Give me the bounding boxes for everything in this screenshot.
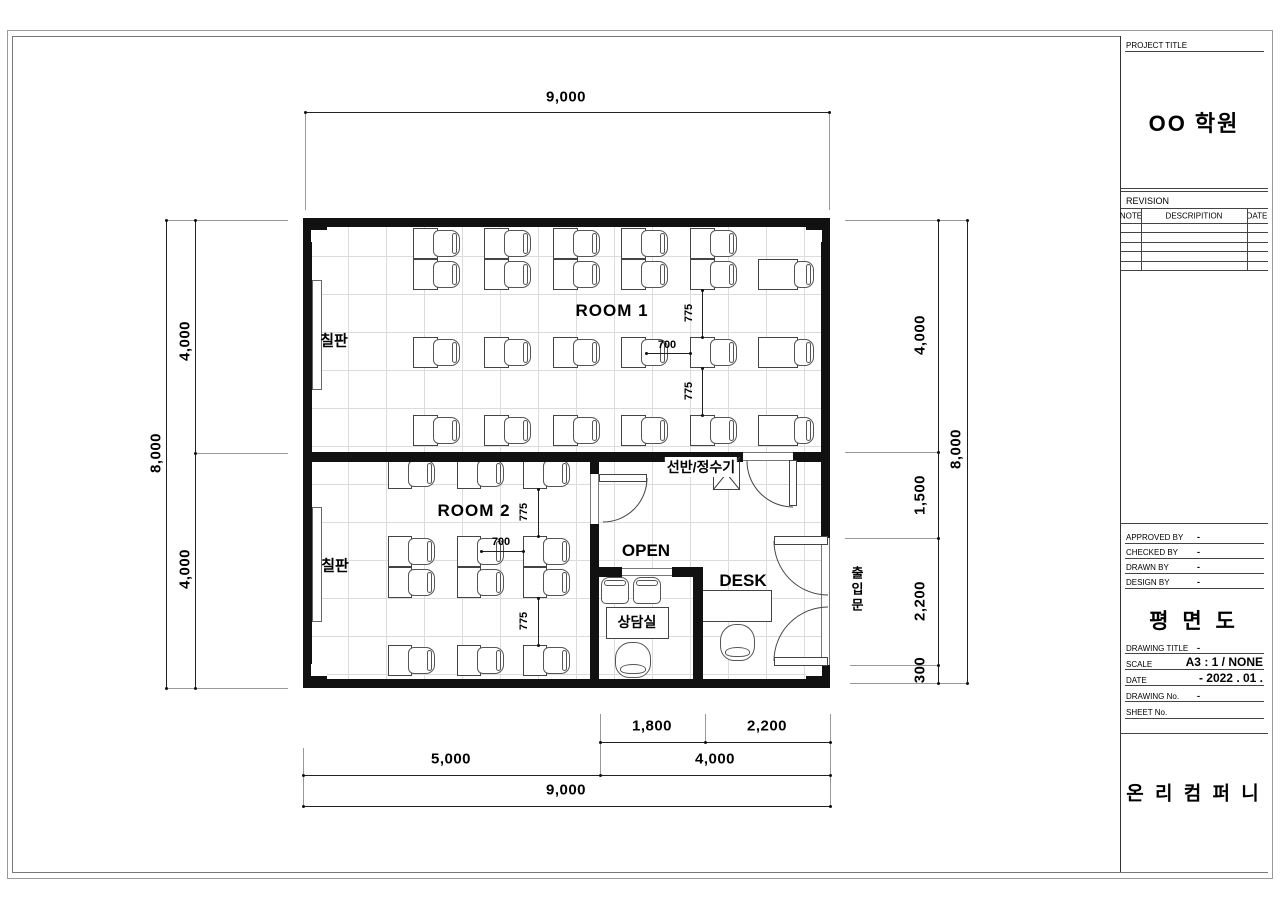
drawn-by-value: -	[1197, 562, 1200, 572]
dimension-tick	[304, 111, 307, 114]
scale-value: A3 : 1 / NONE	[1186, 655, 1263, 669]
dim-room2-775-lower: 775	[518, 612, 530, 630]
dimension-line	[600, 742, 830, 743]
extension-line	[845, 538, 938, 539]
dimension-tick	[966, 682, 969, 685]
revision-label: REVISION	[1126, 196, 1169, 206]
dimension-tick	[937, 451, 940, 454]
dim-room1-700: 700	[658, 339, 676, 351]
divider	[1121, 188, 1268, 189]
dimension-line	[303, 806, 830, 807]
desk	[758, 259, 798, 290]
drawing-title-label: DRAWING TITLE	[1126, 644, 1188, 653]
door-leaf	[599, 474, 647, 482]
dimension-line	[303, 775, 830, 776]
chair	[794, 417, 814, 444]
dimension-tick	[537, 644, 540, 647]
desk	[758, 415, 798, 446]
chair	[794, 261, 814, 288]
dimension-line	[702, 368, 703, 415]
chair	[433, 339, 460, 366]
desk	[758, 337, 798, 368]
chair	[408, 460, 435, 487]
divider	[1121, 251, 1268, 252]
divider	[1125, 573, 1264, 574]
drawing-sheet: ROOM 1 ROOM 2 칠판 칠판 선반/정수기 OPEN DESK 상담실…	[0, 0, 1280, 905]
dimension-tick	[829, 774, 832, 777]
reception-desk	[697, 590, 772, 622]
date-label: DATE	[1126, 676, 1147, 685]
dimension-tick	[829, 805, 832, 808]
revision-col-note: NOTE	[1120, 212, 1142, 221]
dim-room2-700: 700	[492, 536, 510, 548]
dimension-tick	[966, 219, 969, 222]
dim-top-9000: 9,000	[546, 89, 586, 106]
dimension-tick	[522, 550, 525, 553]
approved-by-value: -	[1197, 532, 1200, 542]
guest-chair	[633, 577, 661, 604]
open-area-label: OPEN	[622, 541, 670, 561]
drawing-name: 평 면 도	[1149, 605, 1239, 635]
divider	[1125, 51, 1264, 52]
chair	[504, 339, 531, 366]
divider	[1121, 208, 1268, 209]
door-leaf	[789, 460, 797, 506]
chair	[433, 417, 460, 444]
wall	[693, 567, 703, 688]
extension-line	[600, 714, 601, 775]
dimension-tick	[829, 741, 832, 744]
extension-line	[830, 714, 831, 806]
drawn-by-label: DRAWN BY	[1126, 563, 1169, 572]
entrance-door-label: 출입문	[847, 566, 866, 614]
dim-left-8000: 8,000	[148, 433, 165, 473]
chair	[641, 261, 668, 288]
company-name: 온 리 컴 퍼 니	[1126, 779, 1262, 806]
checked-by-label: CHECKED BY	[1126, 548, 1178, 557]
chair	[477, 647, 504, 674]
dim-bottom-2200: 2,200	[747, 718, 787, 735]
drawing-title-value: -	[1197, 643, 1200, 653]
dim-room1-775-lower: 775	[683, 382, 695, 400]
dim-right-2200: 2,200	[912, 581, 929, 621]
dimension-tick	[302, 805, 305, 808]
extension-line	[829, 112, 830, 210]
dimension-line	[305, 112, 829, 113]
wall	[793, 452, 830, 462]
chair	[408, 647, 435, 674]
corner-column-notch	[806, 230, 822, 242]
corner-column-notch	[311, 664, 327, 676]
dim-left-4000-top: 4,000	[177, 321, 194, 361]
drawing-no-label: DRAWING No.	[1126, 692, 1179, 701]
office-chair	[720, 624, 755, 661]
drawing-no-value: -	[1197, 691, 1200, 701]
chair	[710, 261, 737, 288]
divider	[1125, 701, 1264, 702]
dim-right-4000: 4,000	[912, 315, 929, 355]
divider	[1125, 543, 1264, 544]
design-by-value: -	[1197, 577, 1200, 587]
divider	[1141, 208, 1142, 270]
chair	[794, 339, 814, 366]
extension-line	[195, 453, 288, 454]
dimension-tick	[937, 682, 940, 685]
project-name: OO 학원	[1149, 106, 1240, 138]
dimension-tick	[480, 550, 483, 553]
title-block: PROJECT TITLE OO 학원 REVISION NOTE DESCRI…	[1120, 36, 1268, 872]
guest-chair	[601, 577, 629, 604]
chair	[408, 569, 435, 596]
extension-line	[166, 688, 288, 689]
chair	[504, 261, 531, 288]
chair	[543, 569, 570, 596]
sheet-no-label: SHEET No.	[1126, 708, 1167, 717]
door-leaf	[774, 536, 828, 545]
dimension-tick	[537, 535, 540, 538]
chair	[504, 230, 531, 257]
dimension-tick	[937, 537, 940, 540]
chair	[573, 417, 600, 444]
revision-col-date: DATE	[1247, 212, 1268, 221]
chair	[543, 647, 570, 674]
divider	[1121, 242, 1268, 243]
extension-line	[303, 748, 304, 806]
dimension-tick	[599, 774, 602, 777]
divider	[1121, 270, 1268, 271]
dim-bottom-5000: 5,000	[431, 751, 471, 768]
design-by-label: DESIGN BY	[1126, 578, 1170, 587]
dim-right-8000: 8,000	[948, 429, 965, 469]
wall	[599, 567, 622, 577]
dimension-tick	[537, 488, 540, 491]
extension-line	[166, 220, 288, 221]
dimension-line	[538, 489, 539, 536]
chair	[543, 538, 570, 565]
revision-col-description: DESCRIPITION	[1166, 212, 1223, 221]
dimension-tick	[701, 367, 704, 370]
extension-line	[845, 220, 967, 221]
divider	[1121, 223, 1268, 224]
extension-line	[305, 112, 306, 210]
chair	[573, 230, 600, 257]
chair	[543, 460, 570, 487]
dimension-tick	[704, 741, 707, 744]
wall	[590, 452, 599, 474]
chair	[433, 230, 460, 257]
dimension-tick	[937, 219, 940, 222]
extension-line	[705, 714, 706, 742]
divider	[1121, 261, 1268, 262]
dim-room1-775-upper: 775	[683, 304, 695, 322]
dimension-tick	[689, 352, 692, 355]
dimension-tick	[302, 774, 305, 777]
dimension-line	[166, 220, 167, 688]
desk-label: DESK	[719, 571, 766, 591]
dim-left-4000-bottom: 4,000	[177, 549, 194, 589]
dim-bottom-1800: 1,800	[632, 718, 672, 735]
chair	[477, 460, 504, 487]
chair	[641, 417, 668, 444]
dimension-tick	[828, 111, 831, 114]
checked-by-value: -	[1197, 547, 1200, 557]
divider	[1247, 208, 1248, 270]
door-leaf	[774, 657, 828, 666]
room1-label: ROOM 1	[575, 301, 648, 321]
blackboard-room1-label: 칠판	[320, 330, 348, 351]
office-chair	[615, 642, 651, 678]
scale-label: SCALE	[1126, 660, 1152, 669]
dimension-tick	[537, 597, 540, 600]
chair	[710, 417, 737, 444]
counseling-room-label: 상담실	[618, 612, 657, 632]
dimension-tick	[165, 687, 168, 690]
dim-bottom-4000: 4,000	[695, 751, 735, 768]
chair	[573, 261, 600, 288]
dimension-line	[646, 353, 690, 354]
dimension-line	[967, 220, 968, 683]
dimension-tick	[701, 414, 704, 417]
divider	[1121, 191, 1268, 192]
sliding-door-opening	[622, 568, 672, 576]
divider	[1125, 685, 1264, 686]
chair	[433, 261, 460, 288]
dim-right-300: 300	[912, 657, 929, 684]
dimension-tick	[194, 219, 197, 222]
divider	[1125, 669, 1264, 670]
dim-bottom-9000: 9,000	[546, 782, 586, 799]
date-value: - 2022 . 01 .	[1199, 671, 1263, 685]
chair	[573, 339, 600, 366]
divider	[1125, 588, 1264, 589]
door-opening	[590, 474, 599, 524]
dim-right-1500: 1,500	[912, 475, 929, 515]
door-opening	[821, 538, 830, 665]
dimension-line	[538, 598, 539, 645]
blackboard-room2-label: 칠판	[321, 555, 349, 576]
divider	[1121, 523, 1268, 524]
dimension-tick	[701, 336, 704, 339]
approved-by-label: APPROVED BY	[1126, 533, 1183, 542]
chair	[710, 339, 737, 366]
dimension-line	[702, 290, 703, 337]
divider	[1125, 558, 1264, 559]
divider	[1121, 733, 1268, 734]
chair	[477, 569, 504, 596]
room2-label: ROOM 2	[437, 501, 510, 521]
dimension-tick	[165, 219, 168, 222]
dimension-line	[481, 551, 523, 552]
dimension-tick	[194, 452, 197, 455]
dim-room2-775-upper: 775	[518, 503, 530, 521]
divider	[1125, 653, 1264, 654]
wall	[303, 218, 830, 227]
chair	[408, 538, 435, 565]
wall	[303, 679, 830, 688]
dimension-tick	[937, 664, 940, 667]
dimension-tick	[194, 687, 197, 690]
chair	[504, 417, 531, 444]
shelf-water-purifier-label: 선반/정수기	[665, 457, 737, 477]
chair	[641, 230, 668, 257]
door-opening	[743, 452, 793, 461]
wall	[821, 218, 830, 538]
corner-column-notch	[311, 230, 327, 242]
divider	[1121, 232, 1268, 233]
extension-line	[850, 683, 967, 684]
project-title-label: PROJECT TITLE	[1126, 41, 1187, 50]
wall	[590, 524, 599, 688]
extension-line	[845, 452, 938, 453]
dimension-tick	[645, 352, 648, 355]
dimension-tick	[701, 289, 704, 292]
chair	[710, 230, 737, 257]
divider	[1125, 718, 1264, 719]
dimension-tick	[599, 741, 602, 744]
